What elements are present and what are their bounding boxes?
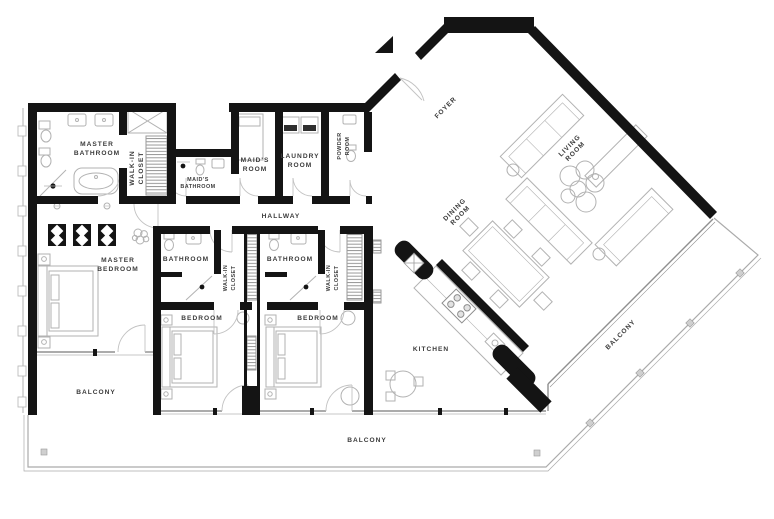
room-label-bathroom-1: BATHROOM (163, 256, 209, 263)
maids-bathroom-fixtures (177, 159, 224, 175)
railing-ticks (41, 269, 744, 456)
chair-icon (237, 312, 249, 324)
room-label-powder-room: POWDER (337, 132, 343, 159)
laundry-machines-icon (282, 117, 318, 133)
bathroom1-fixtures (164, 233, 212, 300)
room-label-master-bathroom: BATHROOM (74, 150, 120, 157)
room-label-walk-in-closet-2: CLOSET (334, 265, 340, 290)
floor-plan-page: MASTER BATHROOM WALK-IN CLOSET MAID'S BA… (0, 0, 774, 519)
room-label-bedroom-1: BEDROOM (181, 315, 222, 322)
room-label-walk-in-closet-1: CLOSET (231, 265, 237, 290)
room-label-master-walk-in-closet: CLOSET (138, 152, 145, 185)
room-label-powder-room: ROOM (345, 137, 351, 156)
room-label-balcony-left: BALCONY (76, 389, 116, 396)
bedroom1-bed-icon (161, 315, 217, 399)
room-label-maids-room: ROOM (243, 166, 268, 173)
room-label-bedroom-2: BEDROOM (297, 315, 338, 322)
bathtub-icon (74, 168, 118, 194)
wardrobe1-icon (247, 234, 257, 300)
room-label-master-bedroom: BEDROOM (97, 266, 138, 273)
room-label-maids-bathroom: BATHROOM (180, 184, 215, 190)
bedroom2-bed-icon (265, 315, 321, 399)
plant-icon (132, 229, 148, 244)
sofa-icon (595, 188, 673, 266)
room-label-master-bedroom: MASTER (101, 257, 135, 264)
breakfast-table-icon (386, 371, 423, 401)
room-label-laundry-room: ROOM (288, 162, 313, 169)
maids-room-bed-icon (236, 114, 263, 160)
balcony-railing (24, 218, 761, 471)
floor-plan-svg: MASTER BATHROOM WALK-IN CLOSET MAID'S BA… (0, 0, 774, 519)
room-label-kitchen: KITCHEN (413, 346, 449, 353)
room-label-hallway: HALLWAY (262, 213, 301, 220)
room-label-maids-room: MAID'S (241, 157, 270, 164)
room-label-bathroom-2: BATHROOM (267, 256, 313, 263)
bathroom2-fixtures (269, 233, 316, 300)
room-label-master-bathroom: MASTER (80, 141, 114, 148)
sofa-icon (500, 94, 583, 177)
room-label-maids-bathroom: MAID'S (187, 177, 209, 183)
room-label-balcony-bottom: BALCONY (347, 437, 387, 444)
room-label-foyer: FOYER (434, 96, 459, 121)
room-label-master-walk-in-closet: WALK-IN (129, 150, 136, 185)
master-bed-icon (38, 254, 98, 348)
armchair-icon (341, 387, 359, 405)
wardrobe2-icon (347, 234, 362, 300)
room-label-walk-in-closet-2: WALK-IN (326, 265, 332, 292)
room-label-walk-in-closet-1: WALK-IN (223, 265, 229, 292)
room-label-laundry-room: LAUNDRY (281, 153, 320, 160)
living-room-furniture (500, 94, 673, 266)
north-arrow-icon (375, 36, 393, 53)
